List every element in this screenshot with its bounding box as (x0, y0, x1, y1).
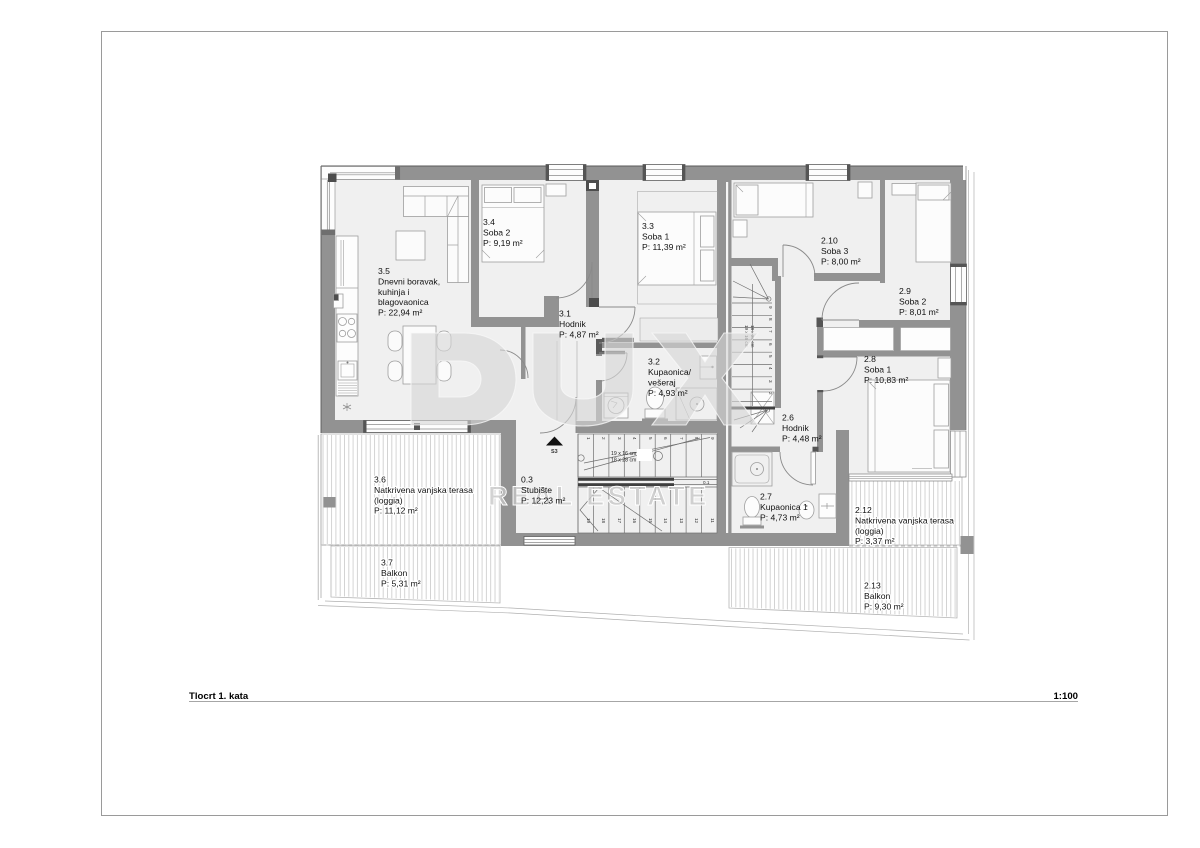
svg-text:8: 8 (768, 318, 773, 321)
svg-text:15: 15 (648, 518, 653, 524)
svg-text:2.9: 2.9 (899, 286, 911, 296)
svg-text:P: 8,01 m²: P: 8,01 m² (899, 307, 939, 317)
svg-text:2: 2 (768, 392, 773, 395)
svg-text:Natkrivena vanjska terasa: Natkrivena vanjska terasa (374, 485, 473, 495)
svg-text:1: 1 (586, 437, 591, 440)
svg-text:19 x 16 cm: 19 x 16 cm (611, 451, 636, 457)
svg-text:5: 5 (768, 355, 773, 358)
svg-text:P: 4,48 m²: P: 4,48 m² (782, 433, 822, 443)
svg-text:9: 9 (768, 306, 773, 309)
svg-text:12: 12 (694, 518, 699, 524)
svg-text:Balkon: Balkon (864, 591, 890, 601)
svg-text:5: 5 (648, 437, 653, 440)
svg-text:Tlocrt 1. kata: Tlocrt 1. kata (189, 691, 249, 702)
svg-text:Dnevni boravak,: Dnevni boravak, (378, 276, 440, 286)
svg-text:3.6: 3.6 (374, 475, 386, 485)
svg-text:17: 17 (617, 518, 622, 524)
svg-text:P: 12,23 m²: P: 12,23 m² (521, 495, 566, 505)
svg-text:P: 3,37 m²: P: 3,37 m² (855, 536, 895, 546)
svg-text:4: 4 (768, 367, 773, 370)
svg-text:P: 22,94 m²: P: 22,94 m² (378, 308, 423, 318)
svg-text:3.4: 3.4 (483, 217, 495, 227)
svg-text:Natkrivena vanjska terasa: Natkrivena vanjska terasa (855, 515, 954, 525)
svg-text:P: 4,87 m²: P: 4,87 m² (559, 330, 599, 340)
svg-text:Hodnik: Hodnik (559, 319, 586, 329)
svg-text:19: 19 (586, 518, 591, 524)
svg-text:13: 13 (679, 518, 684, 524)
svg-text:blagovaonica: blagovaonica (378, 297, 429, 307)
svg-text:16: 16 (632, 518, 637, 524)
svg-text:14: 14 (663, 518, 668, 524)
svg-text:P: 4,93 m²: P: 4,93 m² (648, 388, 688, 398)
svg-text:2.6: 2.6 (782, 413, 794, 423)
svg-text:kuhinja i: kuhinja i (378, 287, 410, 297)
svg-text:3.2: 3.2 (648, 357, 660, 367)
svg-text:P: 4,73 m²: P: 4,73 m² (760, 512, 800, 522)
svg-text:Soba 2: Soba 2 (483, 227, 510, 237)
svg-text:2: 2 (601, 437, 606, 440)
svg-text:11: 11 (710, 518, 715, 523)
svg-text:Soba 1: Soba 1 (642, 231, 669, 241)
svg-text:P: 9,19 m²: P: 9,19 m² (483, 238, 523, 248)
svg-text:7: 7 (679, 437, 684, 440)
svg-text:3: 3 (768, 380, 773, 383)
svg-text:Kupaonica/: Kupaonica/ (648, 367, 692, 377)
svg-text:P: 11,39 m²: P: 11,39 m² (642, 242, 686, 252)
svg-text:Soba 2: Soba 2 (899, 296, 926, 306)
svg-text:P: 5,31 m²: P: 5,31 m² (381, 578, 421, 588)
svg-text:18: 18 (601, 518, 606, 524)
svg-text:3.5: 3.5 (378, 266, 390, 276)
svg-text:18 x 28 cm: 18 x 28 cm (611, 458, 636, 464)
svg-text:0.3: 0.3 (521, 475, 533, 485)
svg-text:1:100: 1:100 (1053, 691, 1078, 702)
svg-text:4: 4 (632, 437, 637, 440)
svg-text:P: 9,30 m²: P: 9,30 m² (864, 601, 904, 611)
svg-text:Hodnik: Hodnik (782, 423, 809, 433)
svg-text:(loggia): (loggia) (374, 495, 403, 505)
svg-text:P: 8,00 m²: P: 8,00 m² (821, 256, 861, 266)
svg-text:vešeraj: vešeraj (648, 378, 676, 388)
svg-text:3.1: 3.1 (559, 309, 571, 319)
svg-text:(loggia): (loggia) (855, 526, 884, 536)
svg-text:Stubište: Stubište (521, 485, 552, 495)
svg-text:P: 11,12 m²: P: 11,12 m² (374, 506, 418, 516)
svg-text:8: 8 (694, 437, 699, 440)
svg-text:2.8: 2.8 (864, 354, 876, 364)
svg-text:2.7: 2.7 (760, 492, 772, 502)
svg-text:3.3: 3.3 (642, 221, 654, 231)
svg-text:9: 9 (710, 437, 715, 440)
svg-text:2.13: 2.13 (864, 581, 881, 591)
svg-text:S3: S3 (551, 449, 558, 455)
svg-text:2.12: 2.12 (855, 505, 872, 515)
svg-text:Kupaonica 1: Kupaonica 1 (760, 502, 808, 512)
svg-text:6: 6 (768, 343, 773, 346)
svg-text:P: 10,83 m²: P: 10,83 m² (864, 375, 909, 385)
svg-text:7: 7 (768, 330, 773, 333)
svg-text:3: 3 (617, 437, 622, 440)
svg-text:3.7: 3.7 (381, 558, 393, 568)
svg-text:2.10: 2.10 (821, 236, 838, 246)
svg-text:Soba 1: Soba 1 (864, 364, 891, 374)
svg-text:6: 6 (663, 437, 668, 440)
svg-text:Balkon: Balkon (381, 568, 407, 578)
svg-text:Soba 3: Soba 3 (821, 246, 848, 256)
